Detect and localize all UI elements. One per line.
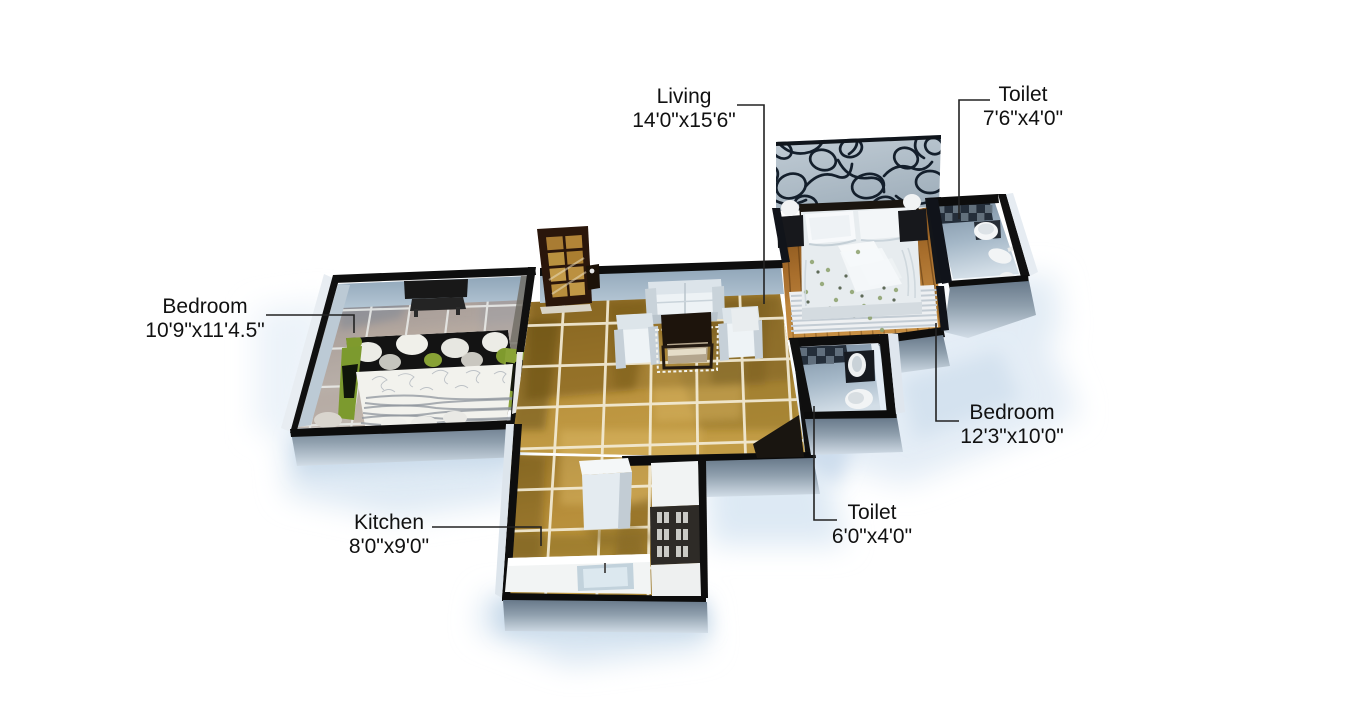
- svg-text:10'9"x11'4.5": 10'9"x11'4.5": [145, 319, 264, 342]
- svg-text:Living: Living: [657, 85, 712, 108]
- svg-text:6'0"x4'0": 6'0"x4'0": [832, 525, 912, 548]
- svg-text:14'0"x15'6": 14'0"x15'6": [632, 109, 736, 132]
- svg-text:Bedroom: Bedroom: [969, 401, 1054, 424]
- svg-text:Kitchen: Kitchen: [354, 511, 424, 534]
- svg-text:Toilet: Toilet: [998, 83, 1047, 106]
- svg-text:12'3"x10'0": 12'3"x10'0": [960, 425, 1064, 448]
- svg-text:Bedroom: Bedroom: [162, 295, 247, 318]
- svg-text:7'6"x4'0": 7'6"x4'0": [983, 107, 1063, 130]
- svg-text:8'0"x9'0": 8'0"x9'0": [349, 535, 429, 558]
- svg-text:Toilet: Toilet: [847, 501, 896, 524]
